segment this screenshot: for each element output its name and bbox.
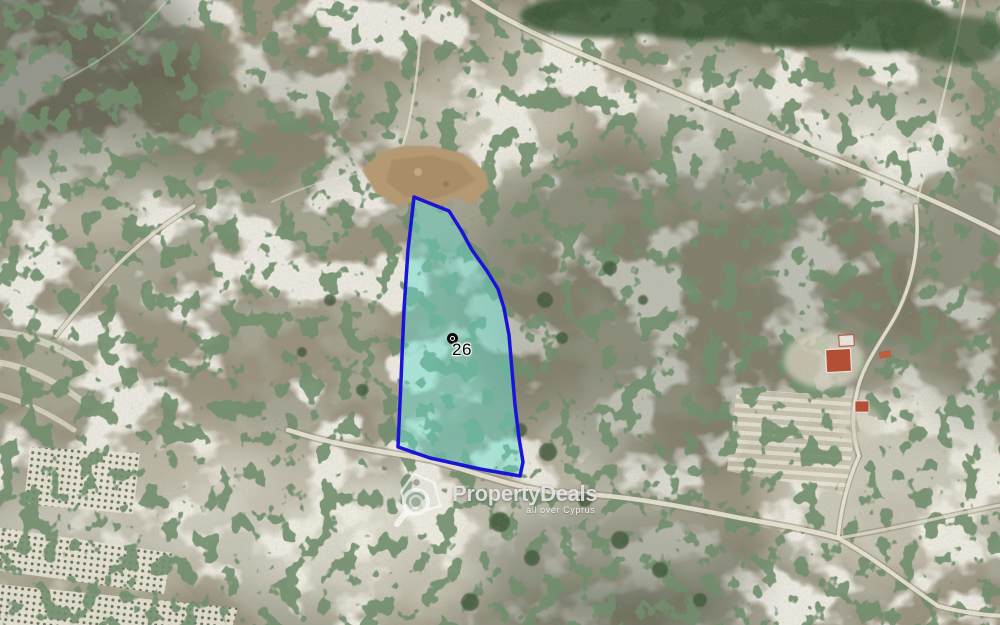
parcel-marker: 26 [447, 333, 487, 363]
parcel-number-label: 26 [452, 340, 472, 360]
terrain-imagery [0, 0, 1000, 625]
satellite-map-view[interactable]: 26 PropertyDeals all over Cyprus [0, 0, 1000, 625]
